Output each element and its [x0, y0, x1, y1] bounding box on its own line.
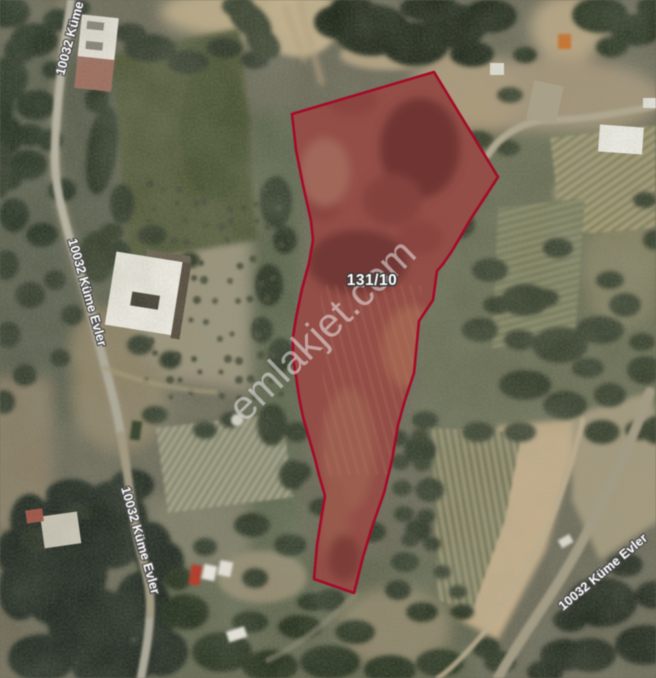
svg-text:131/10: 131/10 [347, 272, 397, 289]
